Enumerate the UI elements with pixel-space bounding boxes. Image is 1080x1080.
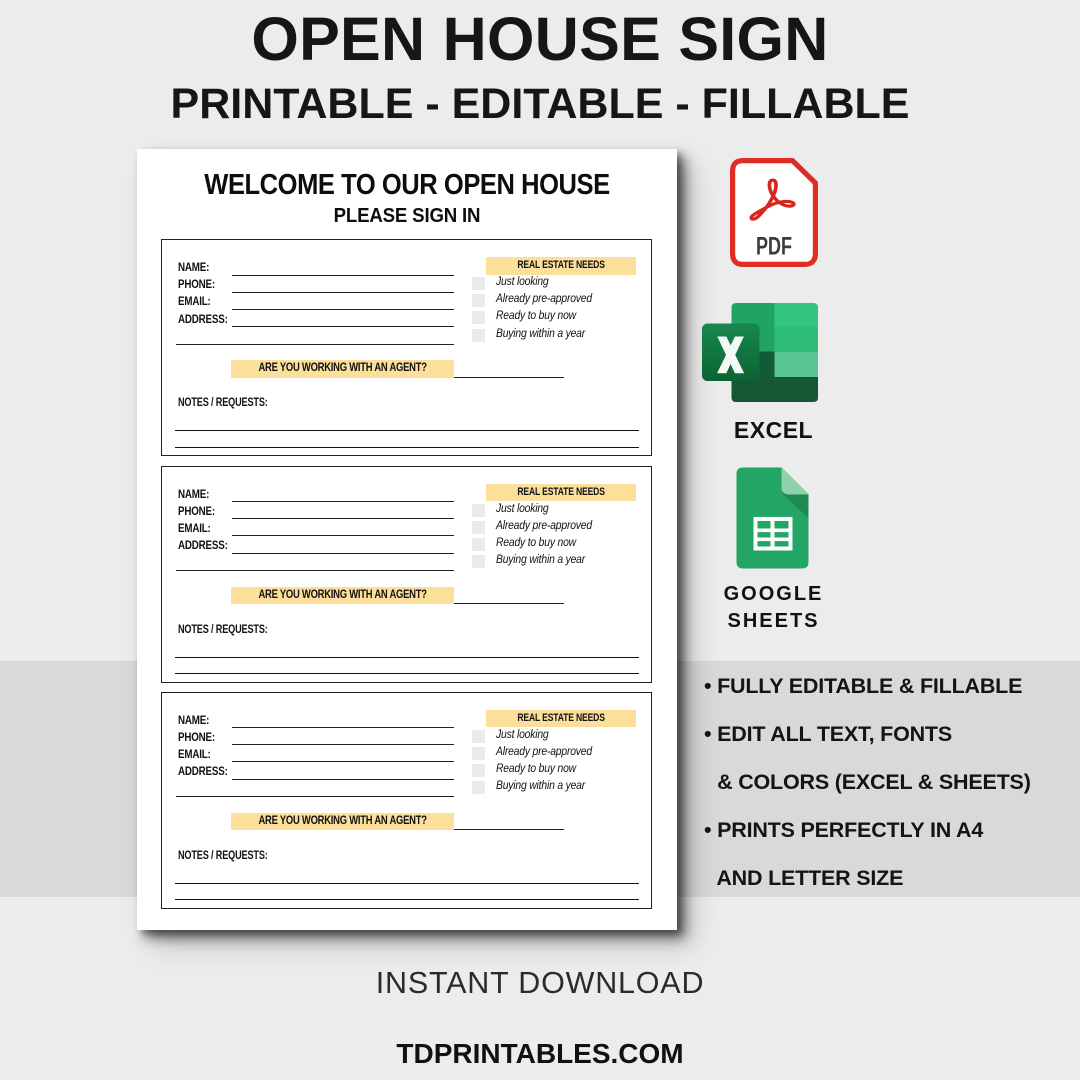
svg-text:PDF: PDF xyxy=(756,233,792,261)
